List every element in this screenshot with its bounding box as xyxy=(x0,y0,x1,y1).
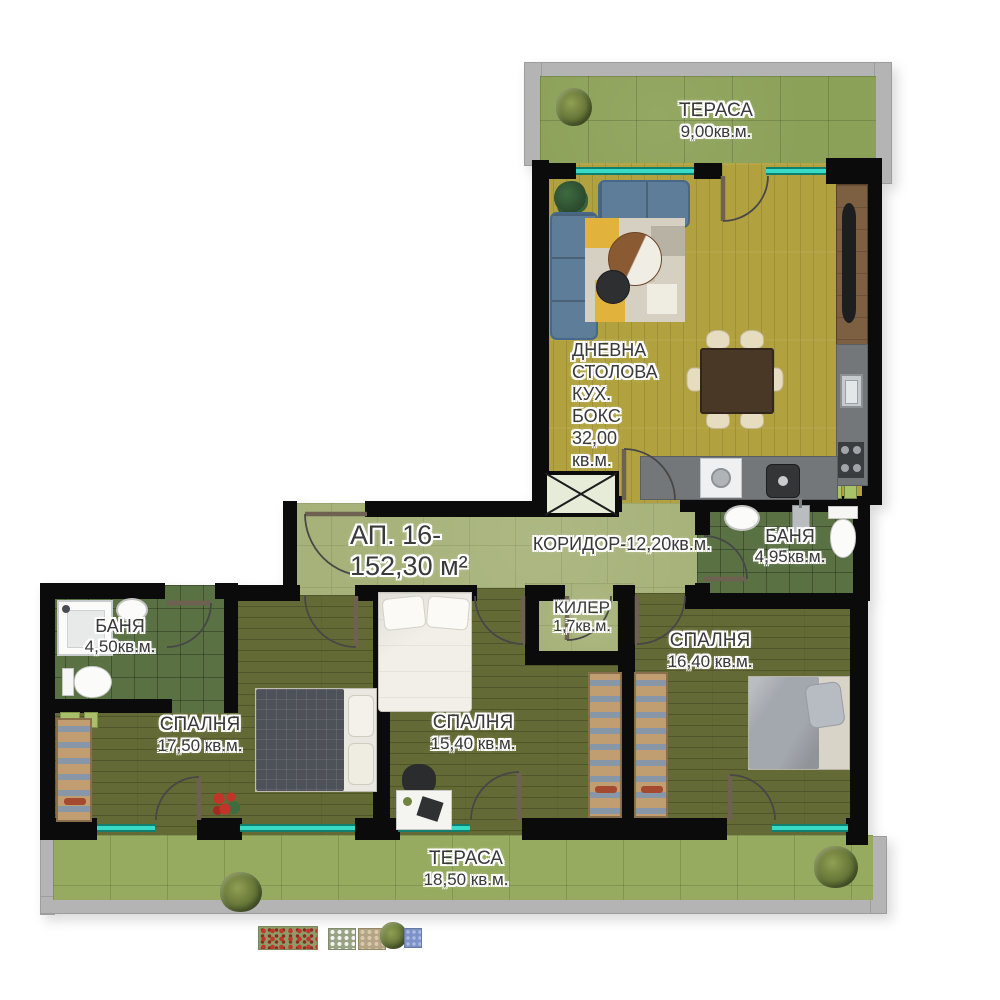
wall-bath-right-bottom xyxy=(685,593,868,609)
wall-bath-left-right xyxy=(224,583,238,713)
bush-terrace-bottom-left xyxy=(220,872,262,912)
wall-bed-right-right xyxy=(850,593,868,845)
wall-bottom-c xyxy=(355,818,400,840)
wall-storage-bottom xyxy=(525,651,633,665)
bed-bedroom-right xyxy=(748,676,850,770)
room-area: 9,00кв.м. xyxy=(679,122,753,142)
duvet-dark xyxy=(256,689,344,791)
label-corridor: КОРИДОР-12,20кв.м. xyxy=(533,534,711,555)
side-table-round xyxy=(596,270,630,304)
floor-plan: ТЕРАСА 9,00кв.м. ДНЕВНА СТОЛОВА КУХ. БОК… xyxy=(0,0,1000,1000)
label-living: ДНЕВНА СТОЛОВА КУХ. БОКС 32,00 кв.м. xyxy=(572,340,658,472)
bed-bedroom-middle xyxy=(378,592,472,712)
wall-bottom-corner xyxy=(846,818,868,845)
label-apartment: АП. 16- 152,30 м² xyxy=(350,520,468,582)
wall-living-bottom-a xyxy=(532,496,622,512)
window-bedroom-left-b xyxy=(240,824,355,832)
planter-green-bush xyxy=(380,922,407,949)
stove xyxy=(838,442,864,478)
room-name: ТЕРАСА xyxy=(679,100,753,122)
apartment-area: 152,30 м² xyxy=(350,551,468,582)
wall-living-top-c xyxy=(826,158,882,184)
planter-white-flowers xyxy=(328,928,356,950)
pillow xyxy=(348,743,374,785)
pillow xyxy=(348,695,374,737)
coffee-machine xyxy=(766,464,800,498)
wardrobe-bedroom-left xyxy=(56,718,92,822)
bush-terrace-bottom-right xyxy=(814,846,858,888)
wall-bath-right-left-a xyxy=(695,501,710,535)
plant-flowers-red xyxy=(210,788,240,818)
planter-red-flowers xyxy=(258,926,318,950)
cabinet-decor xyxy=(842,203,856,323)
dining-table xyxy=(700,348,774,414)
kitchen-niche-b xyxy=(844,484,857,499)
wall-living-top-a xyxy=(540,163,576,179)
laptop xyxy=(416,796,443,822)
label-storage: КИЛЕР 1,7кв.м. xyxy=(553,598,611,637)
label-bath-left: БАНЯ 4,50кв.м. xyxy=(85,616,156,657)
wall-living-left xyxy=(532,160,549,510)
desk xyxy=(396,790,452,830)
label-bedroom-right: СПАЛНЯ 16,40 кв.м. xyxy=(668,630,753,672)
wardrobe-bedroom-right xyxy=(634,672,668,818)
kitchen-cabinet xyxy=(836,184,868,346)
wardrobe-bedroom-middle xyxy=(588,672,622,818)
bush-terrace-top xyxy=(556,88,592,126)
label-terrace-bottom: ТЕРАСА 18,50 кв.м. xyxy=(424,848,509,890)
pillow xyxy=(804,681,846,730)
pillow xyxy=(381,595,426,631)
dining-chair xyxy=(740,330,764,349)
label-bedroom-left: СПАЛНЯ 17,50 кв.м. xyxy=(158,714,243,756)
label-bedroom-middle: СПАЛНЯ 15,40 кв.м. xyxy=(431,712,516,754)
window-living-left xyxy=(576,167,694,175)
toilet-left xyxy=(62,666,112,698)
washing-machine xyxy=(700,458,742,498)
wall-hall-left xyxy=(283,501,297,597)
plant-living xyxy=(554,181,586,213)
kitchen-sink xyxy=(840,374,863,408)
label-bath-right: БАНЯ 4,95кв.м. xyxy=(755,526,826,567)
label-terrace-top: ТЕРАСА 9,00кв.м. xyxy=(679,100,753,142)
window-bedroom-right xyxy=(772,824,848,832)
window-living-right xyxy=(766,167,826,175)
wall-bottom-d xyxy=(522,818,727,840)
wall-bath-right-left-b xyxy=(695,583,710,605)
wall-exterior-left xyxy=(40,583,55,840)
pillow xyxy=(426,595,471,631)
floor-plan-sheet: ТЕРАСА 9,00кв.м. ДНЕВНА СТОЛОВА КУХ. БОК… xyxy=(0,0,1000,1000)
dining-chair xyxy=(706,330,730,349)
wall-hall-top-b xyxy=(365,501,543,517)
apartment-number: АП. 16- xyxy=(350,520,468,551)
bed-bedroom-left xyxy=(255,688,377,792)
wall-living-top-b xyxy=(694,163,722,179)
window-bedroom-left-a xyxy=(97,824,155,832)
wall-bath-left-bottom xyxy=(42,699,172,713)
planter-blue-flowers xyxy=(404,928,422,948)
wall-bath-left-top-a xyxy=(42,583,165,599)
wall-bottom-b xyxy=(197,818,242,840)
toilet-right xyxy=(828,506,858,560)
